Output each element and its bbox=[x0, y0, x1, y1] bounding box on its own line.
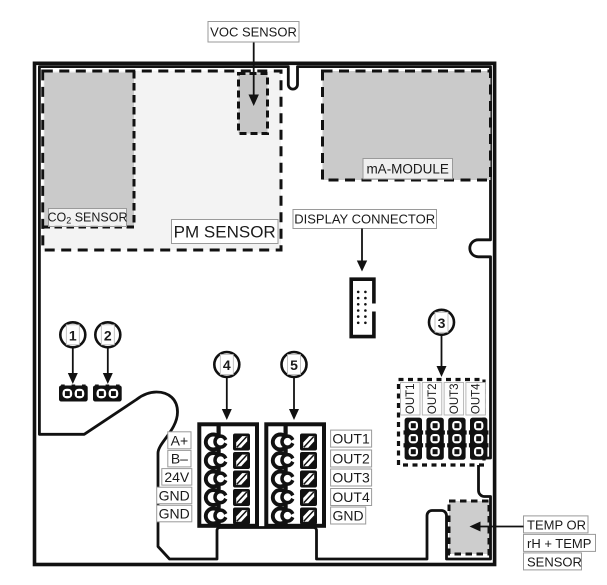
svg-text:OUT1: OUT1 bbox=[405, 383, 417, 414]
svg-text:B–: B– bbox=[171, 451, 188, 467]
svg-text:OUT3: OUT3 bbox=[332, 470, 370, 486]
svg-text:GND: GND bbox=[159, 487, 190, 503]
svg-text:2: 2 bbox=[104, 327, 112, 343]
svg-text:OUT2: OUT2 bbox=[427, 383, 439, 414]
svg-text:OUT2: OUT2 bbox=[332, 451, 370, 467]
svg-text:OUT4: OUT4 bbox=[471, 383, 483, 414]
svg-text:PM SENSOR: PM SENSOR bbox=[174, 223, 276, 242]
svg-text:GND: GND bbox=[333, 508, 364, 524]
svg-text:DISPLAY CONNECTOR: DISPLAY CONNECTOR bbox=[294, 212, 435, 227]
svg-text:3: 3 bbox=[438, 315, 446, 331]
svg-text:VOC SENSOR: VOC SENSOR bbox=[210, 25, 297, 40]
svg-text:CO2 SENSOR: CO2 SENSOR bbox=[47, 211, 127, 226]
svg-text:SENSOR: SENSOR bbox=[527, 554, 582, 569]
svg-text:OUT4: OUT4 bbox=[332, 489, 370, 505]
svg-text:mA-MODULE: mA-MODULE bbox=[366, 162, 449, 177]
svg-text:5: 5 bbox=[290, 357, 298, 373]
svg-text:OUT3: OUT3 bbox=[449, 383, 461, 414]
svg-text:GND: GND bbox=[159, 506, 190, 522]
svg-text:TEMP OR: TEMP OR bbox=[527, 517, 586, 532]
svg-text:OUT1: OUT1 bbox=[332, 431, 370, 447]
svg-text:A+: A+ bbox=[171, 432, 189, 448]
svg-text:rH + TEMP: rH + TEMP bbox=[527, 536, 591, 551]
svg-text:24V: 24V bbox=[164, 469, 190, 485]
svg-text:1: 1 bbox=[69, 327, 77, 343]
svg-text:4: 4 bbox=[223, 357, 231, 373]
